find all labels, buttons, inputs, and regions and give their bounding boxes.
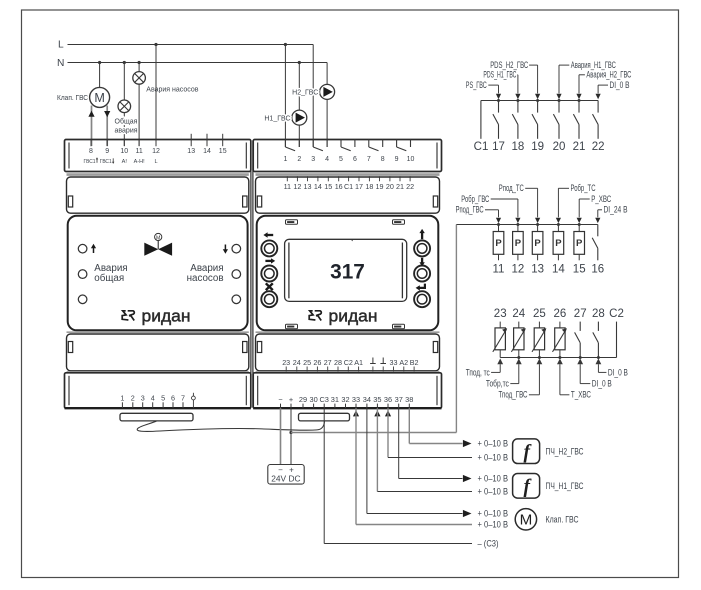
svg-text:B2: B2 bbox=[410, 358, 419, 367]
svg-text:P: P bbox=[515, 238, 522, 249]
svg-text:15: 15 bbox=[219, 148, 227, 155]
svg-text:C2: C2 bbox=[609, 308, 624, 320]
svg-text:+ 0–10 В: + 0–10 В bbox=[478, 474, 509, 484]
svg-text:3: 3 bbox=[311, 156, 315, 163]
svg-text:Клап. ГВС: Клап. ГВС bbox=[546, 514, 580, 524]
svg-text:2: 2 bbox=[131, 393, 135, 402]
svg-text:Клап. ГВС: Клап. ГВС bbox=[57, 93, 89, 102]
svg-text:20: 20 bbox=[386, 182, 394, 191]
svg-text:20: 20 bbox=[553, 141, 566, 153]
svg-text:13: 13 bbox=[531, 263, 544, 275]
svg-text:6: 6 bbox=[353, 156, 357, 163]
svg-text:Тобр,тс: Тобр,тс bbox=[486, 379, 509, 389]
svg-text:PS_ГВС: PS_ГВС bbox=[466, 80, 487, 90]
svg-text:DI_0 В: DI_0 В bbox=[592, 379, 612, 389]
svg-text:Авария_Н2_ГВС: Авария_Н2_ГВС bbox=[586, 70, 631, 80]
svg-text:+ 0–10 В: + 0–10 В bbox=[478, 520, 509, 530]
svg-text:28: 28 bbox=[334, 358, 342, 367]
svg-text:23: 23 bbox=[282, 358, 290, 367]
svg-text:5: 5 bbox=[161, 393, 165, 402]
svg-text:26: 26 bbox=[313, 358, 321, 367]
svg-text:ГВС1: ГВС1 bbox=[84, 159, 96, 165]
svg-text:22: 22 bbox=[592, 141, 605, 153]
svg-text:A-H!: A-H! bbox=[134, 159, 145, 165]
svg-text:25: 25 bbox=[533, 308, 546, 320]
svg-text:Т_ХВС: Т_ХВС bbox=[571, 390, 591, 400]
svg-text:DI_0 В: DI_0 В bbox=[610, 80, 630, 90]
svg-text:16: 16 bbox=[591, 263, 604, 275]
svg-text:H1_ГВС: H1_ГВС bbox=[264, 115, 290, 122]
svg-text:−: − bbox=[278, 395, 282, 404]
svg-text:Робр_ГВС: Робр_ГВС bbox=[461, 194, 489, 204]
svg-text:13: 13 bbox=[187, 148, 195, 155]
svg-text:DI_0 В: DI_0 В bbox=[608, 367, 628, 377]
svg-text:P: P bbox=[555, 238, 562, 249]
svg-text:C2: C2 bbox=[344, 358, 353, 367]
svg-text:8: 8 bbox=[89, 148, 93, 155]
svg-text:6: 6 bbox=[171, 393, 175, 402]
svg-text:25: 25 bbox=[303, 358, 311, 367]
svg-text:Общая: Общая bbox=[115, 117, 138, 125]
svg-text:12: 12 bbox=[512, 263, 525, 275]
svg-text:DI_24 В: DI_24 В bbox=[604, 205, 628, 215]
svg-text:18: 18 bbox=[365, 182, 373, 191]
svg-text:28: 28 bbox=[592, 308, 605, 320]
svg-text:+: + bbox=[289, 395, 293, 404]
svg-text:19: 19 bbox=[531, 141, 544, 153]
svg-text:31: 31 bbox=[331, 395, 339, 404]
svg-text:29: 29 bbox=[299, 395, 307, 404]
svg-text:Рпод_ТС: Рпод_ТС bbox=[499, 183, 524, 193]
svg-text:12: 12 bbox=[293, 182, 301, 191]
svg-text:4: 4 bbox=[151, 393, 155, 402]
svg-text:Тпод_ГВС: Тпод_ГВС bbox=[499, 390, 528, 400]
svg-text:ридан: ридан bbox=[142, 307, 191, 326]
svg-text:11: 11 bbox=[135, 148, 142, 155]
svg-text:P: P bbox=[576, 238, 583, 249]
svg-text:Робр_ТС: Робр_ТС bbox=[571, 183, 596, 193]
svg-text:Авария_Н1_ГВС: Авария_Н1_ГВС bbox=[571, 60, 616, 70]
svg-text:317: 317 bbox=[330, 261, 365, 284]
svg-text:38: 38 bbox=[405, 395, 413, 404]
svg-text:ПЧ_Н2_ГВС: ПЧ_Н2_ГВС bbox=[546, 446, 584, 456]
svg-text:35: 35 bbox=[373, 395, 381, 404]
svg-text:C1: C1 bbox=[474, 141, 489, 153]
svg-text:14: 14 bbox=[203, 148, 211, 155]
svg-text:11: 11 bbox=[493, 263, 505, 275]
svg-text:M: M bbox=[520, 512, 533, 529]
svg-text:Авария насосов: Авария насосов bbox=[146, 87, 198, 94]
svg-text:L: L bbox=[154, 159, 157, 165]
svg-text:21: 21 bbox=[396, 182, 404, 191]
svg-text:ридан: ридан bbox=[329, 307, 378, 326]
svg-text:19: 19 bbox=[376, 182, 384, 191]
svg-text:26: 26 bbox=[554, 308, 567, 320]
svg-text:1: 1 bbox=[283, 156, 287, 163]
svg-text:15: 15 bbox=[324, 182, 332, 191]
svg-text:P: P bbox=[495, 238, 502, 249]
svg-text:9: 9 bbox=[105, 148, 109, 155]
svg-text:L: L bbox=[58, 40, 64, 51]
svg-text:17: 17 bbox=[355, 182, 363, 191]
svg-text:10: 10 bbox=[120, 148, 128, 155]
svg-text:PDS_H1_ГВС: PDS_H1_ГВС bbox=[483, 70, 516, 80]
svg-text:Тпод, тс: Тпод, тс bbox=[466, 367, 490, 377]
svg-text:15: 15 bbox=[573, 263, 586, 275]
svg-text:A1: A1 bbox=[354, 358, 363, 367]
svg-text:24: 24 bbox=[512, 308, 525, 320]
svg-text:16: 16 bbox=[335, 182, 343, 191]
svg-text:A2: A2 bbox=[399, 358, 408, 367]
svg-text:10: 10 bbox=[407, 156, 415, 163]
svg-text:33: 33 bbox=[352, 395, 360, 404]
svg-text:24V DC: 24V DC bbox=[271, 473, 300, 483]
svg-text:авария: авария bbox=[115, 127, 138, 134]
svg-text:насосов: насосов bbox=[187, 273, 224, 284]
svg-text:+ 0–10 В: + 0–10 В bbox=[478, 439, 509, 449]
svg-text:37: 37 bbox=[395, 395, 403, 404]
svg-text:Р_ХВС: Р_ХВС bbox=[591, 194, 611, 204]
svg-text:22: 22 bbox=[406, 182, 414, 191]
svg-text:23: 23 bbox=[494, 308, 507, 320]
svg-text:Авария: Авария bbox=[190, 263, 223, 274]
svg-text:13: 13 bbox=[304, 182, 312, 191]
svg-text:11: 11 bbox=[284, 182, 291, 191]
svg-text:4: 4 bbox=[325, 156, 329, 163]
svg-text:14: 14 bbox=[314, 182, 322, 191]
svg-text:21: 21 bbox=[573, 141, 586, 153]
svg-text:ГВС1: ГВС1 bbox=[100, 159, 112, 165]
svg-text:12: 12 bbox=[152, 148, 160, 155]
svg-text:M: M bbox=[156, 235, 160, 241]
svg-text:ПЧ_Н1_ГВС: ПЧ_Н1_ГВС bbox=[546, 481, 584, 491]
svg-text:5: 5 bbox=[339, 156, 343, 163]
svg-text:+ 0–10 В: + 0–10 В bbox=[478, 509, 509, 519]
svg-text:2: 2 bbox=[297, 156, 301, 163]
svg-text:3: 3 bbox=[141, 393, 145, 402]
svg-text:1: 1 bbox=[120, 393, 124, 402]
svg-text:H2_ГВС: H2_ГВС bbox=[292, 90, 318, 97]
svg-text:27: 27 bbox=[574, 308, 587, 320]
svg-text:C3: C3 bbox=[319, 395, 328, 404]
svg-text:32: 32 bbox=[341, 395, 349, 404]
svg-text:9: 9 bbox=[395, 156, 399, 163]
svg-text:14: 14 bbox=[552, 263, 565, 275]
svg-text:+ 0–10 В: + 0–10 В bbox=[478, 487, 509, 497]
svg-text:17: 17 bbox=[492, 141, 505, 153]
svg-text:C1: C1 bbox=[344, 182, 353, 191]
svg-text:7: 7 bbox=[181, 393, 185, 402]
svg-text:7: 7 bbox=[367, 156, 371, 163]
svg-text:Авария: Авария bbox=[94, 263, 127, 274]
svg-text:8: 8 bbox=[381, 156, 385, 163]
svg-text:PDS_H2_ГВС: PDS_H2_ГВС bbox=[490, 60, 528, 70]
svg-text:N: N bbox=[57, 58, 64, 69]
svg-text:30: 30 bbox=[309, 395, 317, 404]
svg-text:общая: общая bbox=[94, 273, 124, 284]
svg-text:36: 36 bbox=[384, 395, 392, 404]
svg-text:Рпод_ГВС: Рпод_ГВС bbox=[456, 205, 484, 215]
svg-text:P: P bbox=[534, 238, 541, 249]
svg-text:M: M bbox=[94, 91, 105, 105]
svg-text:34: 34 bbox=[363, 395, 371, 404]
svg-text:24: 24 bbox=[293, 358, 301, 367]
svg-text:+ 0–10 В: + 0–10 В bbox=[478, 453, 509, 463]
svg-text:27: 27 bbox=[324, 358, 332, 367]
svg-text:A!: A! bbox=[122, 159, 128, 165]
svg-text:18: 18 bbox=[512, 141, 525, 153]
svg-text:– (С3): – (С3) bbox=[478, 539, 499, 549]
svg-text:33: 33 bbox=[390, 358, 398, 367]
